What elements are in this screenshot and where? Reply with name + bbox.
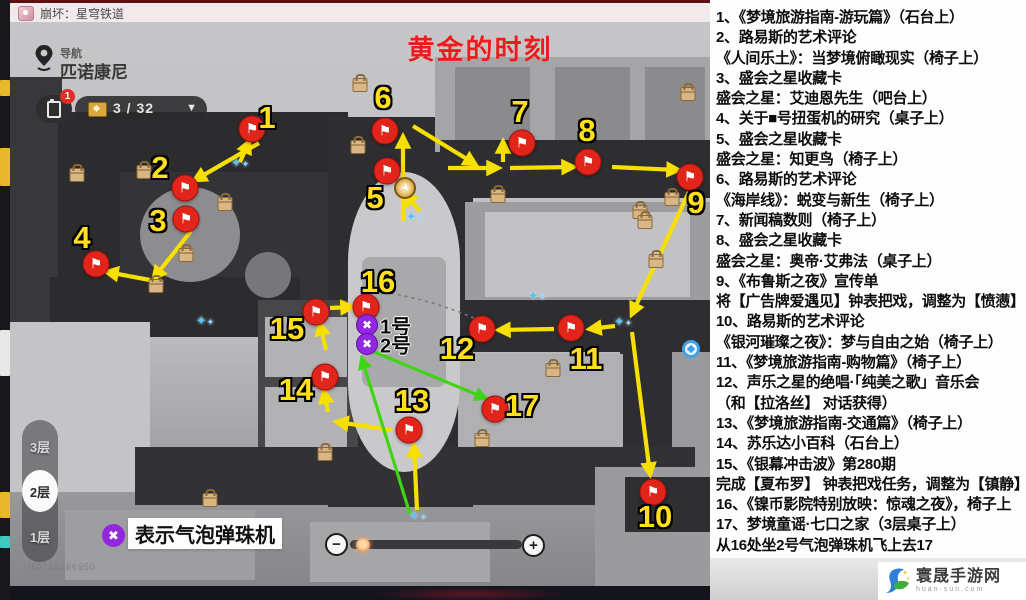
guide-line: 17、梦境童谣·七口之家（3层桌子上） (716, 515, 1024, 535)
map-flag-marker-8[interactable]: ⚑ (575, 149, 602, 176)
guide-line: 《人间乐土》：当梦境俯瞰现实（椅子上） (716, 49, 1024, 69)
watermark-site-name: 寰晟手游网 (916, 568, 1001, 585)
gift-bag-icon (70, 168, 85, 182)
map-flag-marker-14[interactable]: ⚑ (312, 364, 339, 391)
route-number-label-4: 4 (73, 220, 90, 256)
guide-line: 盛会之星：奥帝·艾弗法（桌子上） (716, 252, 1024, 272)
gift-bag-icon (318, 447, 333, 461)
guide-line: 盛会之星：知更鸟（椅子上） (716, 150, 1024, 170)
guide-line: 2、路易斯的艺术评论 (716, 28, 1024, 48)
guide-line: 10、路易斯的艺术评论 (716, 312, 1024, 332)
route-number-label-16: 16 (361, 264, 395, 300)
edge-decor (0, 80, 10, 96)
map-flag-marker-13[interactable]: ⚑ (396, 417, 423, 444)
edge-decor (0, 148, 10, 186)
guide-line: 从16处坐2号气泡弹珠机飞上去17 (716, 536, 1024, 556)
tasks-button[interactable]: 1 (36, 95, 72, 123)
guide-line: 5、盛会之星收藏卡 (716, 130, 1024, 150)
teleport-anchor-icon[interactable] (682, 340, 700, 358)
zoom-slider-knob[interactable] (356, 538, 370, 552)
guide-panel: 1、《梦境旅游指南-游玩篇》（石台上）2、路易斯的艺术评论《人间乐土》：当梦境俯… (710, 0, 1026, 558)
map-flag-marker-11[interactable]: ⚑ (558, 315, 585, 342)
watermark: ✦ ✦ 寰晟手游网 huan·sun.com (878, 562, 1026, 600)
notification-badge: 1 (60, 89, 75, 104)
player-position-marker: ➤ (394, 177, 416, 199)
guide-line: 14、苏乐达小百科（石台上） (716, 434, 1024, 454)
guide-line: 11、《梦境旅游指南-购物篇》（椅子上） (716, 353, 1024, 373)
guide-line: 15、《银幕冲击波》第280期 (716, 455, 1024, 475)
route-number-label-6: 6 (374, 80, 391, 116)
guide-line: 8、盛会之星收藏卡 (716, 231, 1024, 251)
gift-bag-icon (649, 254, 664, 268)
map-building (245, 252, 291, 298)
edge-decor (0, 492, 10, 518)
route-number-label-5: 5 (366, 180, 383, 216)
guide-line: 4、关于■号扭蛋机的研究（桌子上） (716, 109, 1024, 129)
guide-line: 13、《梦境旅游指南-交通篇》（椅子上） (716, 414, 1024, 434)
map-building (645, 67, 705, 142)
guide-line: 12、声乐之星的绝唱·「纯美之歌」音乐会 (716, 373, 1024, 393)
watermark-site-url: huan·sun.com (916, 585, 1001, 594)
edge-decor (0, 330, 10, 376)
sparkle-icon: ✦✦ (528, 288, 546, 304)
guide-line: 7、新闻稿数则（椅子上） (716, 211, 1024, 231)
map-flag-marker-7[interactable]: ⚑ (509, 130, 536, 157)
edge-decor (0, 536, 10, 548)
sparkle-icon: ✦✦ (196, 313, 214, 329)
map-flag-marker-15[interactable]: ⚑ (303, 299, 330, 326)
route-number-label-11: 11 (570, 341, 603, 377)
clipboard-icon (47, 101, 61, 118)
map-viewport[interactable]: ✦✦✦✦✦✦✦✦✦✦✦✦ ➤ ⚑1⚑2⚑3⚑4⚑5⚑6⚑7⚑8⚑9⚑10⚑11⚑… (10, 22, 710, 586)
route-number-label-2: 2 (151, 150, 168, 186)
nav-location: 匹诺康尼 (60, 58, 128, 83)
gift-bag-icon (681, 87, 696, 101)
taskbar-strip (10, 586, 710, 600)
gift-bag-icon (665, 192, 680, 206)
guide-line: 《海岸线》：蜕变与新生（椅子上） (716, 191, 1024, 211)
window-titlebar: 崩坏：星穹铁道 (10, 0, 710, 22)
route-number-label-9: 9 (687, 185, 704, 221)
route-number-label-14: 14 (279, 372, 313, 408)
floor-item-3层[interactable]: 3层 (22, 426, 58, 466)
bubble-machine-legend-icon: ✖ (102, 524, 125, 547)
chevron-down-icon: ▼ (186, 102, 197, 114)
gift-bag-icon (353, 78, 368, 92)
sparkle-icon: ✦✦ (409, 508, 427, 524)
gift-bag-icon (203, 493, 218, 507)
guide-line: 3、盛会之星收藏卡 (716, 69, 1024, 89)
collection-counter-button[interactable]: 3 / 32 ▼ (75, 96, 207, 122)
gift-bag-icon (218, 197, 233, 211)
gift-bag-icon (491, 189, 506, 203)
collection-count: 3 / 32 (113, 100, 154, 116)
map-flag-marker-6[interactable]: ⚑ (372, 118, 399, 145)
screenshot-root: 崩坏：星穹铁道 ✦✦✦✦✦✦✦✦✦✦✦✦ ➤ ⚑1⚑2⚑3⚑4⚑5⚑6⚑7⚑8⚑… (0, 0, 1026, 600)
chest-icon (88, 102, 107, 117)
guide-line: 16、《镍币影院特别放映：惊魂之夜》，椅子上 (716, 495, 1024, 515)
gift-bag-icon (638, 215, 653, 229)
floor-item-2层[interactable]: 2层 (22, 470, 58, 512)
watermark-logo-icon: ✦ ✦ (882, 566, 912, 596)
zoom-in-button[interactable]: + (522, 534, 545, 557)
uid-text: UID116166950 (24, 562, 96, 572)
route-number-label-3: 3 (149, 203, 166, 239)
zoom-slider-track[interactable] (350, 540, 522, 549)
window-title: 崩坏：星穹铁道 (40, 5, 124, 22)
map-flag-marker-3[interactable]: ⚑ (173, 206, 200, 233)
bubble-machine-marker[interactable]: ✖ (356, 333, 378, 355)
zoom-out-button[interactable]: − (325, 533, 348, 556)
guide-line: 将【广告牌爱遇见】钟表把戏，调整为【愤懑】 (716, 292, 1024, 312)
floor-selector: 3层2层1层 (22, 420, 58, 562)
route-number-label-12: 12 (440, 331, 474, 367)
location-pin-icon (34, 44, 54, 72)
sparkle-icon: ✦✦ (614, 314, 632, 330)
svg-text:✦: ✦ (906, 576, 910, 582)
bubble-machine-label: 2号 (380, 330, 411, 359)
titlebar-top-line (10, 0, 710, 3)
guide-line: 完成【夏布罗】 钟表把戏任务，调整为【镇静】 (716, 475, 1024, 495)
gift-bag-icon (475, 433, 490, 447)
app-icon (18, 6, 34, 21)
guide-line: 9、《布鲁斯之夜》宣传单 (716, 272, 1024, 292)
gift-bag-icon (179, 248, 194, 262)
route-number-label-7: 7 (511, 94, 528, 130)
floor-item-1层[interactable]: 1层 (22, 516, 58, 556)
guide-line: （和【拉洛丝】 对话获得） (716, 394, 1024, 414)
route-number-label-13: 13 (395, 383, 429, 419)
gift-bag-icon (137, 165, 152, 179)
guide-line: 盛会之星：艾迪恩先生（吧台上） (716, 89, 1024, 109)
gift-bag-icon (149, 279, 164, 293)
desktop-edge-strip (0, 0, 10, 600)
map-overlay-title: 黄金的时刻 (350, 28, 610, 67)
gift-bag-icon (546, 363, 561, 377)
route-number-label-10: 10 (638, 499, 672, 535)
guide-line: 6、路易斯的艺术评论 (716, 170, 1024, 190)
guide-line: 1、《梦境旅游指南-游玩篇》（石台上） (716, 8, 1024, 28)
map-flag-marker-2[interactable]: ⚑ (172, 175, 199, 202)
sparkle-icon: ✦✦ (231, 155, 249, 171)
sparkle-icon: ✦✦ (406, 209, 424, 225)
legend-label: 表示气泡弹珠机 (128, 518, 282, 549)
guide-line: 《银河璀璨之夜》：梦与自由之始（椅子上） (716, 333, 1024, 353)
route-number-label-17: 17 (505, 388, 539, 424)
route-number-label-1: 1 (258, 100, 275, 136)
gift-bag-icon (351, 140, 366, 154)
route-number-label-15: 15 (270, 311, 304, 347)
route-number-label-8: 8 (578, 113, 595, 149)
